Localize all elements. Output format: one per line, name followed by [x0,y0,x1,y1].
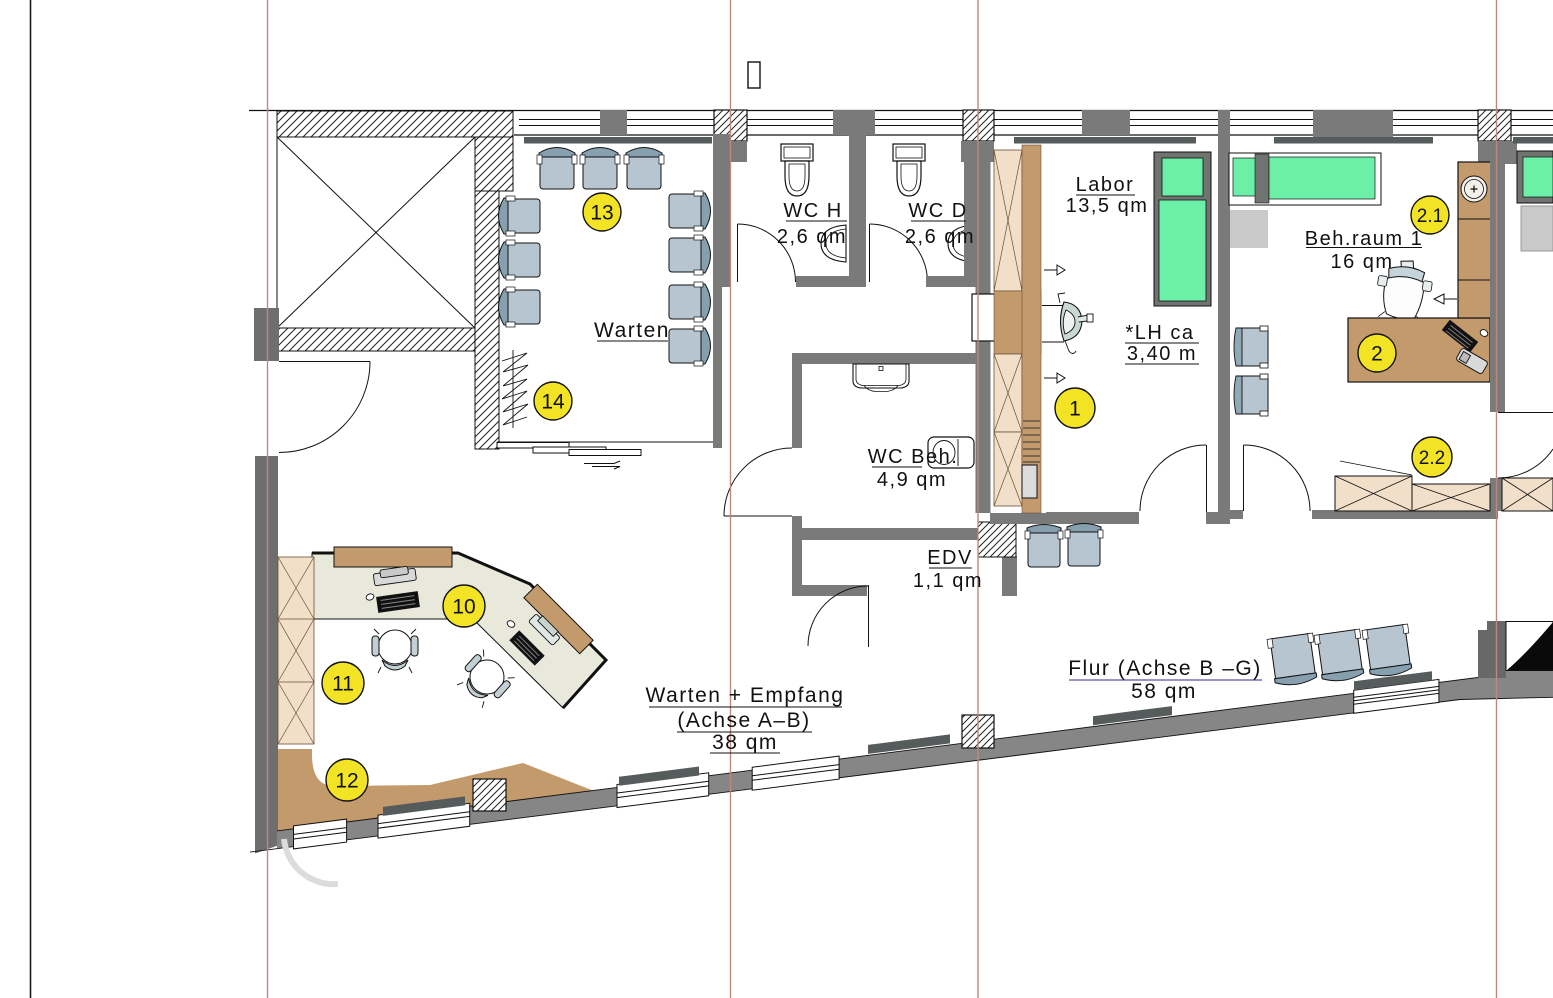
svg-text:14: 14 [541,391,565,414]
svg-text:58 qm: 58 qm [1131,680,1197,703]
svg-text:WC Beh.: WC Beh. [868,446,959,468]
svg-text:EDV: EDV [927,547,973,569]
svg-text:Labor: Labor [1076,174,1135,196]
svg-text:13,5 qm: 13,5 qm [1066,195,1149,217]
svg-text:(Achse A–B): (Achse A–B) [677,709,810,732]
svg-text:4,9 qm: 4,9 qm [877,469,947,491]
svg-text:2,6 qm: 2,6 qm [777,226,847,248]
svg-text:12: 12 [335,770,358,793]
svg-text:16 qm: 16 qm [1330,251,1393,273]
svg-text:*LH ca: *LH ca [1125,322,1194,344]
svg-text:2.2: 2.2 [1419,448,1445,469]
svg-text:13: 13 [590,202,613,225]
svg-text:2,6 qm: 2,6 qm [905,226,975,248]
svg-text:Warten + Empfang: Warten + Empfang [646,684,845,707]
svg-text:3,40 m: 3,40 m [1127,343,1197,365]
svg-text:1,1 qm: 1,1 qm [913,570,983,592]
svg-text:Warten: Warten [594,319,670,342]
svg-text:Beh.raum 1: Beh.raum 1 [1305,228,1423,250]
svg-text:38 qm: 38 qm [712,731,778,754]
svg-text:WC H: WC H [783,200,842,222]
svg-text:11: 11 [332,673,354,696]
svg-text:1: 1 [1069,398,1081,421]
svg-text:2.1: 2.1 [1417,206,1443,227]
svg-text:10: 10 [452,596,475,619]
svg-text:Flur (Achse B –G): Flur (Achse B –G) [1068,657,1262,680]
svg-text:WC D: WC D [908,200,967,222]
svg-text:2: 2 [1371,343,1383,366]
